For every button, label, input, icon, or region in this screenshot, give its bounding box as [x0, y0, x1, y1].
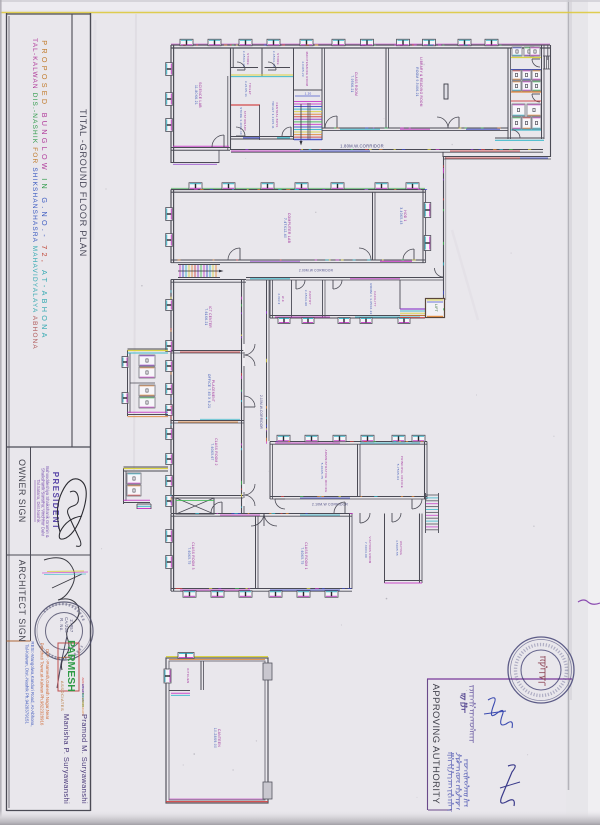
svg-text:LIFT: LIFT: [434, 304, 438, 312]
svg-text:7.60X5.67: 7.60X5.67: [210, 443, 214, 460]
svg-text:11.80X6.21: 11.80X6.21: [194, 85, 198, 105]
svg-text:W.R: W.R: [281, 296, 285, 302]
svg-text:STORE 3.40X3.10: STORE 3.40X3.10: [239, 107, 243, 135]
svg-text:Pramod M. Suryawanshi: Pramod M. Suryawanshi: [80, 714, 89, 804]
svg-text:3.40X5.43: 3.40X5.43: [399, 207, 403, 224]
svg-text:2.10M.W CORRIDOR: 2.10M.W CORRIDOR: [312, 503, 349, 507]
svg-text:R. No.: R. No.: [59, 618, 64, 632]
svg-text:2.0X3.9: 2.0X3.9: [277, 293, 281, 304]
svg-text:7.61X6.21: 7.61X6.21: [204, 308, 208, 325]
svg-text:Manisha P. Suryawanshi: Manisha P. Suryawanshi: [62, 714, 71, 804]
svg-text:CA/200: CA/200: [64, 617, 69, 633]
svg-text:7.60X5.75: 7.60X5.75: [300, 547, 304, 564]
svg-text:ARCHITECT SIGN: ARCHITECT SIGN: [17, 560, 27, 643]
svg-text:1.80M.W.CORRIDOR: 1.80M.W.CORRIDOR: [340, 144, 384, 149]
svg-text:2.00M.W CORRIDOR: 2.00M.W CORRIDOR: [299, 269, 334, 273]
svg-text:ROOM 1 3.65X6.22: ROOM 1 3.65X6.22: [369, 283, 373, 314]
svg-text:Tal-Kalwan, Dist.-Nashik Ph.94: Tal-Kalwan, Dist.-Nashik Ph.9420379151: [25, 644, 30, 724]
svg-text:10.28X9.00: 10.28X9.00: [213, 728, 217, 748]
svg-text:Tal.Satana, Dist.Nashik: Tal.Satana, Dist.Nashik: [36, 479, 41, 523]
svg-text:Panchati Tower,at-Kalwan Ph.98: Panchati Tower,at-Kalwan Ph.9822328916: [40, 643, 45, 726]
svg-text:OFFICE 7.60 X 6.21: OFFICE 7.60 X 6.21: [207, 374, 211, 408]
svg-text:3.45X3.90: 3.45X3.90: [304, 290, 308, 306]
svg-text:1.20: 1.20: [305, 92, 312, 96]
svg-text:4.50X5.55: 4.50X5.55: [395, 540, 399, 556]
svg-text:7.60X3.00: 7.60X3.00: [364, 542, 368, 558]
svg-text:4.04X5.23: 4.04X5.23: [301, 61, 305, 77]
svg-text:TAL-KALWAN DIS.-NASHIK FOR SHI: TAL-KALWAN DIS.-NASHIK FOR SHIKSHANSHASR…: [31, 38, 38, 350]
svg-text:2.10M.W.CORRIDOR: 2.10M.W.CORRIDOR: [259, 395, 263, 430]
svg-text:7.60X5.75: 7.60X5.75: [187, 547, 191, 564]
svg-text:OWNER SIGN: OWNER SIGN: [17, 459, 27, 523]
svg-text:PROPOSED BUNGLOW IN G.NO.- 72,: PROPOSED BUNGLOW IN G.NO.- 72, AT-ABHONA: [40, 40, 49, 341]
svg-text:ASSOCIATES: ASSOCIATES: [60, 681, 65, 711]
svg-text:5.75X5.04: 5.75X5.04: [396, 464, 400, 480]
svg-text:7.95X6.21: 7.95X6.21: [350, 75, 354, 92]
svg-text:3.21X5.11: 3.21X5.11: [244, 81, 248, 97]
svg-text:7.47X12.40: 7.47X12.40: [283, 218, 287, 238]
svg-text:KITCHEN: KITCHEN: [186, 668, 190, 683]
svg-text:PARMESH: PARMESH: [65, 640, 77, 692]
svg-text:5.04X5.75: 5.04X5.75: [320, 463, 324, 479]
svg-text:3.45X3.18: 3.45X3.18: [242, 51, 246, 67]
svg-text:ROOM 9.54X6.21: ROOM 9.54X6.21: [415, 67, 419, 97]
svg-text:27857: 27857: [69, 619, 74, 633]
svg-text:APPROVING AUTHORITY: APPROVING AUTHORITY: [431, 684, 442, 805]
svg-text:TITAL -GROUND FLOOR PLAN: TITAL -GROUND FLOOR PLAN: [78, 109, 88, 257]
svg-text:RESI:-Mangolwa,Kanduri Road, A: RESI:-Mangolwa,Kanduri Road, At-Abhona,: [30, 641, 35, 726]
svg-text:TOILET 3.21X5.11: TOILET 3.21X5.11: [271, 101, 275, 129]
svg-text:OFF :-Parmesh,Ganesh Nagar,Nea: OFF :-Parmesh,Ganesh Nagar,Near: [45, 649, 50, 720]
